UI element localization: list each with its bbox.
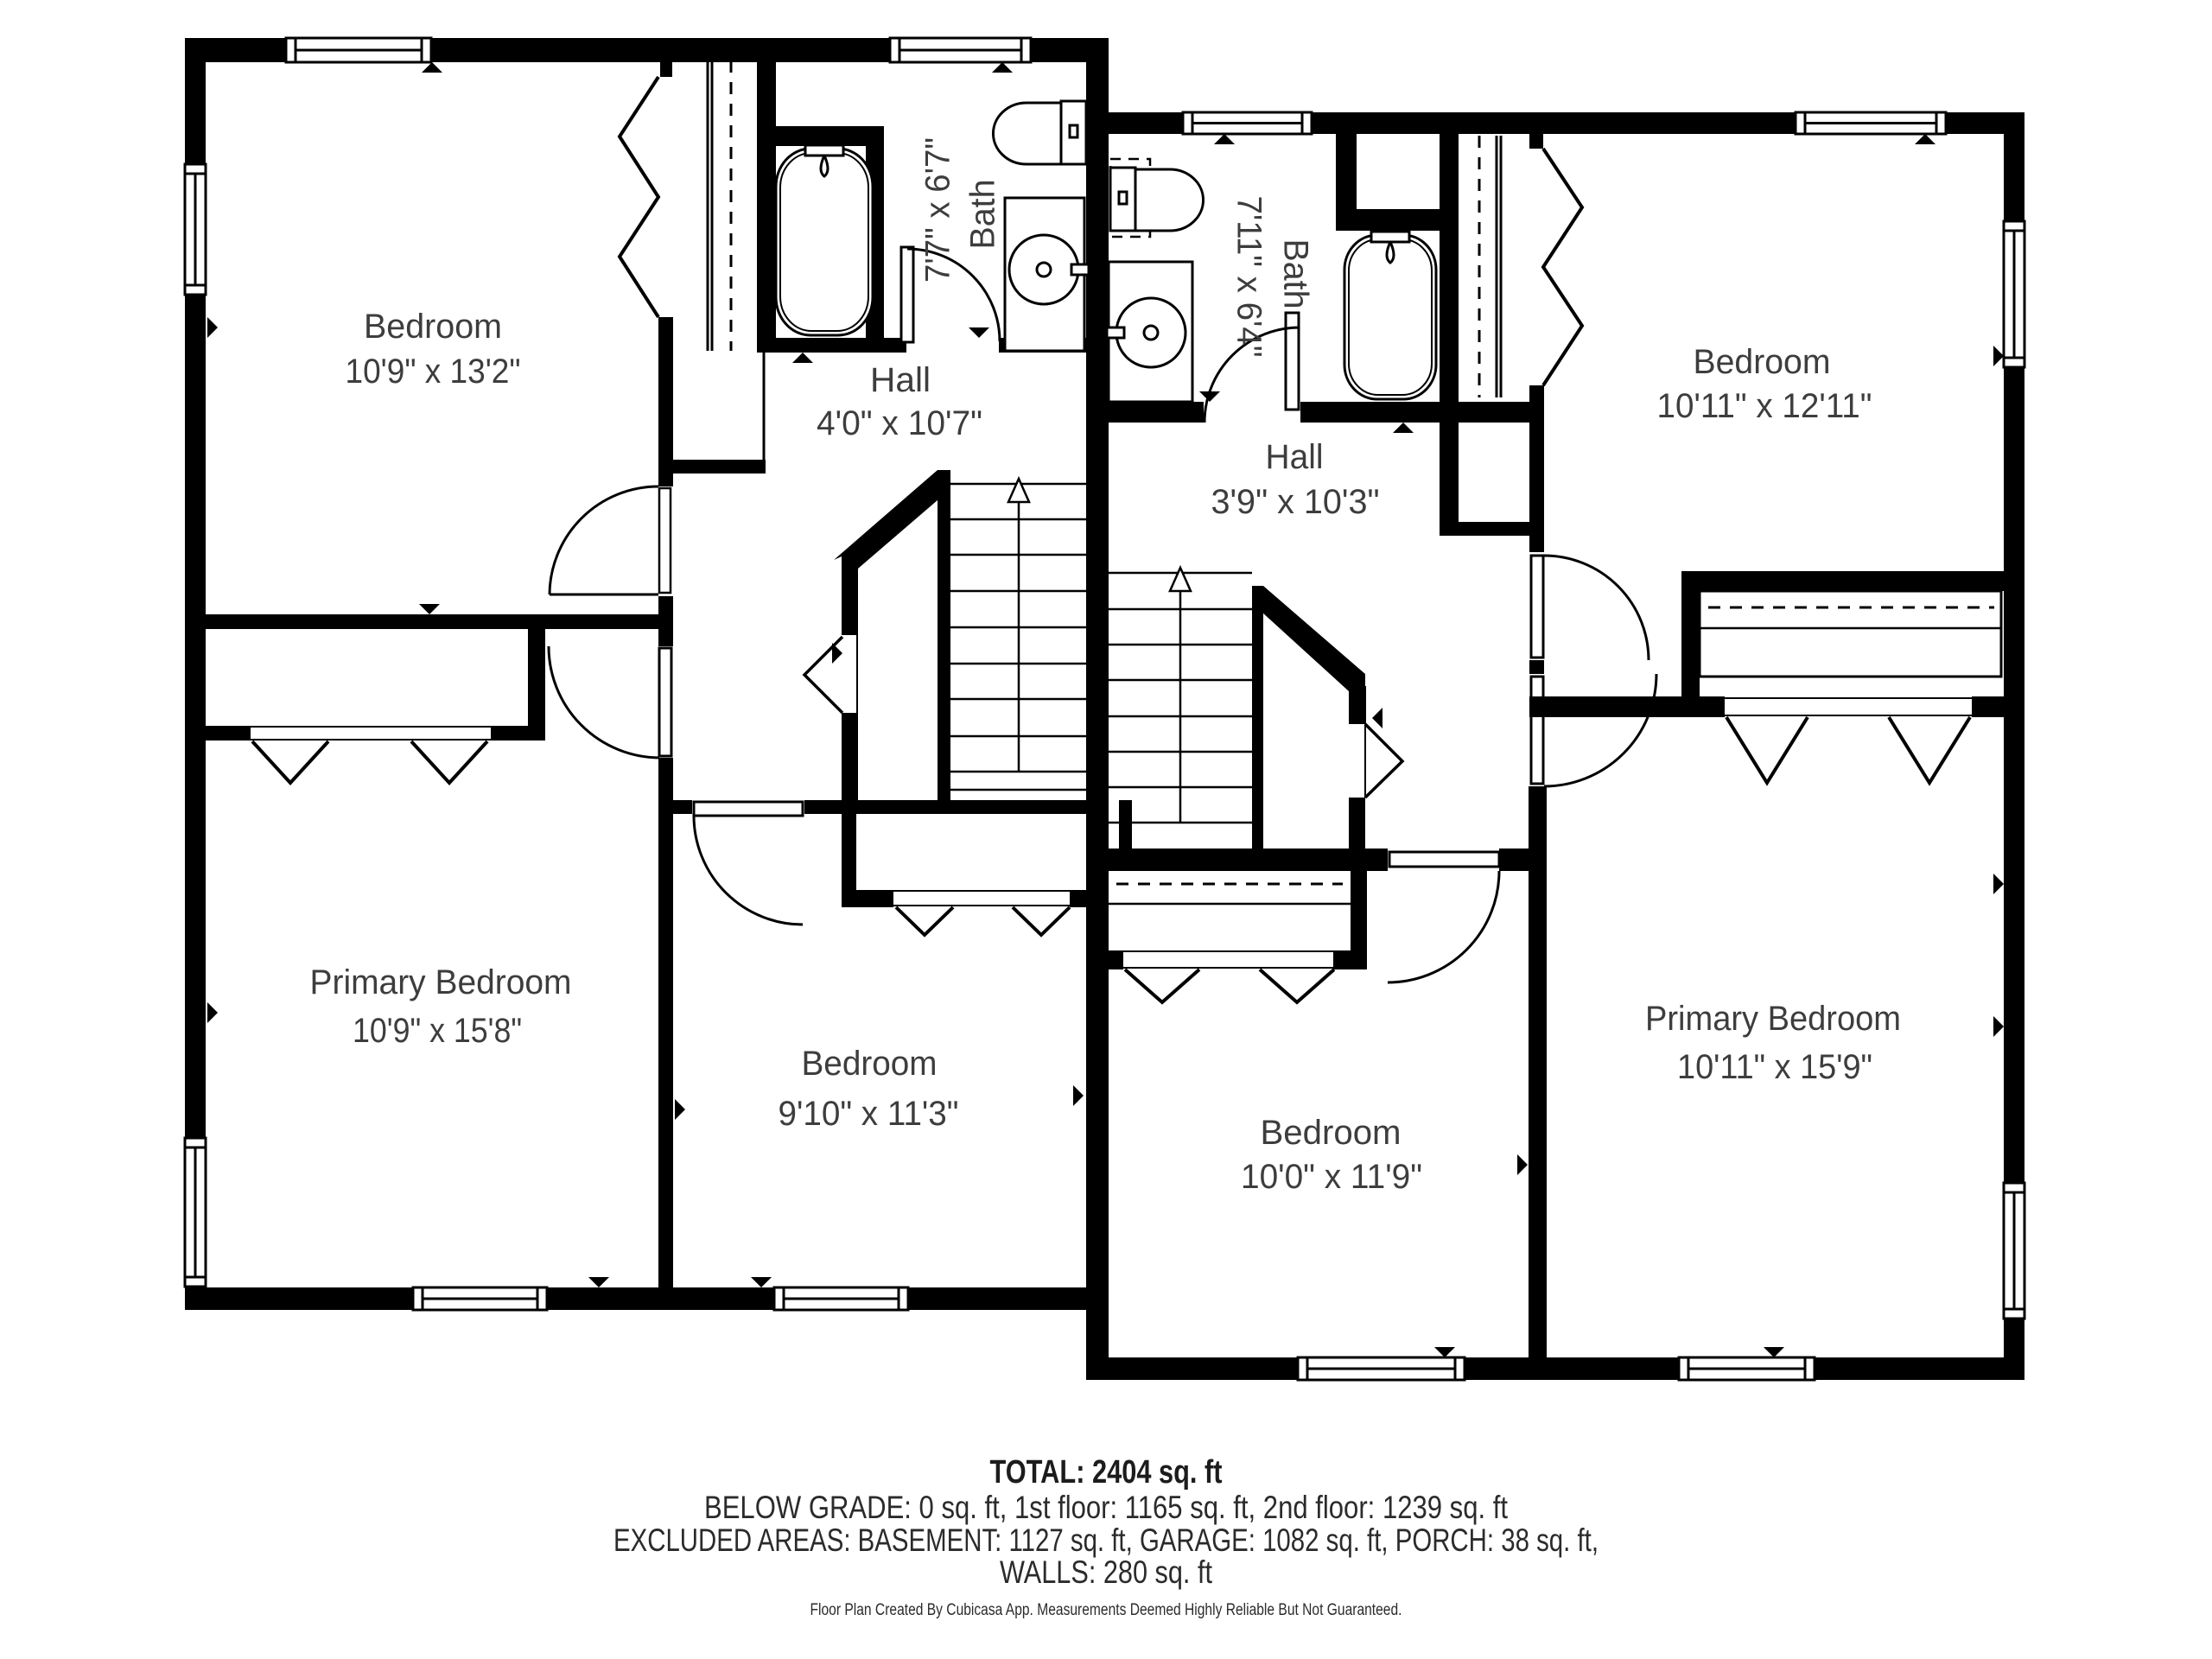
svg-text:Primary Bedroom: Primary Bedroom (1645, 1000, 1901, 1038)
svg-text:TOTAL: 2404 sq. ft: TOTAL: 2404 sq. ft (990, 1454, 1223, 1491)
svg-text:4'0" x 10'7": 4'0" x 10'7" (817, 404, 982, 442)
svg-text:BELOW GRADE: 0 sq. ft, 1st flo: BELOW GRADE: 0 sq. ft, 1st floor: 1165 s… (704, 1490, 1509, 1525)
svg-text:3'9" x 10'3": 3'9" x 10'3" (1211, 483, 1380, 521)
svg-text:10'9" x 15'8": 10'9" x 15'8" (353, 1012, 522, 1050)
svg-text:9'10" x 11'3": 9'10" x 11'3" (779, 1095, 959, 1133)
svg-text:Bath: Bath (1276, 239, 1314, 309)
svg-text:Floor Plan Created By Cubicasa: Floor Plan Created By Cubicasa App. Meas… (810, 1601, 1402, 1619)
svg-text:Hall: Hall (870, 361, 931, 399)
svg-text:7'11" x 6'4": 7'11" x 6'4" (1230, 196, 1268, 358)
svg-text:10'9" x 13'2": 10'9" x 13'2" (346, 353, 521, 391)
svg-text:10'11" x 12'11": 10'11" x 12'11" (1657, 387, 1872, 425)
svg-text:EXCLUDED AREAS: BASEMENT: 1127: EXCLUDED AREAS: BASEMENT: 1127 sq. ft, G… (613, 1522, 1599, 1558)
svg-text:10'11" x 15'9": 10'11" x 15'9" (1677, 1048, 1872, 1086)
svg-text:Bedroom: Bedroom (364, 308, 502, 346)
svg-text:Bedroom: Bedroom (1261, 1114, 1402, 1152)
svg-text:Bedroom: Bedroom (1694, 343, 1831, 381)
svg-text:Primary Bedroom: Primary Bedroom (310, 963, 572, 1001)
svg-text:7'7" x 6'7": 7'7" x 6'7" (919, 137, 957, 283)
svg-text:WALLS: 280 sq. ft: WALLS: 280 sq. ft (1000, 1554, 1213, 1590)
svg-text:Bedroom: Bedroom (802, 1045, 938, 1083)
svg-text:10'0" x 11'9": 10'0" x 11'9" (1241, 1158, 1422, 1196)
svg-text:Bath: Bath (964, 180, 1002, 250)
svg-text:Hall: Hall (1266, 438, 1324, 476)
